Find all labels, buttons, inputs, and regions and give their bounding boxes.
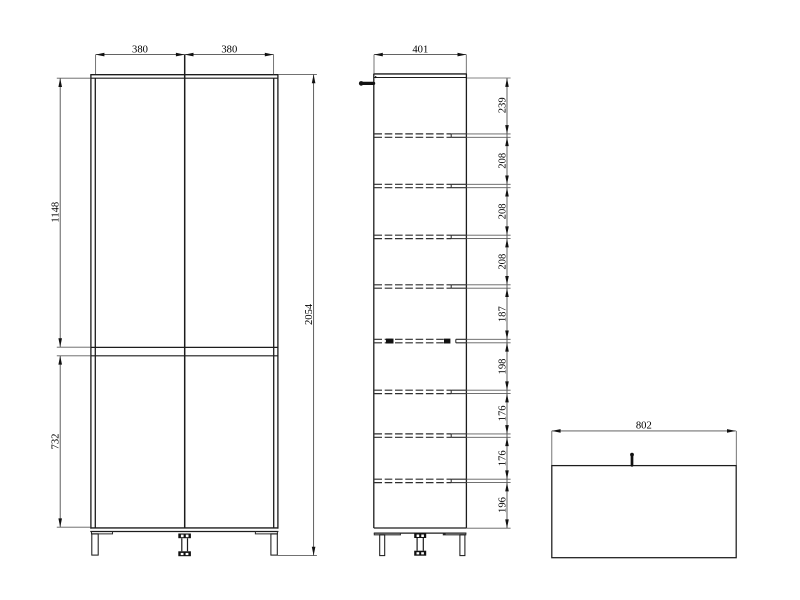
svg-text:239: 239	[497, 97, 508, 113]
svg-text:176: 176	[497, 405, 508, 421]
svg-text:802: 802	[636, 421, 652, 432]
svg-text:380: 380	[132, 45, 148, 56]
svg-text:176: 176	[497, 450, 508, 466]
svg-text:208: 208	[497, 203, 508, 219]
svg-text:187: 187	[497, 306, 508, 322]
svg-text:1148: 1148	[50, 202, 61, 223]
svg-text:196: 196	[497, 497, 508, 513]
svg-text:208: 208	[497, 153, 508, 169]
svg-text:208: 208	[497, 254, 508, 270]
svg-text:401: 401	[412, 45, 428, 56]
svg-text:380: 380	[221, 45, 237, 56]
svg-text:2054: 2054	[304, 303, 315, 325]
svg-text:198: 198	[497, 359, 508, 375]
svg-text:732: 732	[50, 434, 61, 450]
